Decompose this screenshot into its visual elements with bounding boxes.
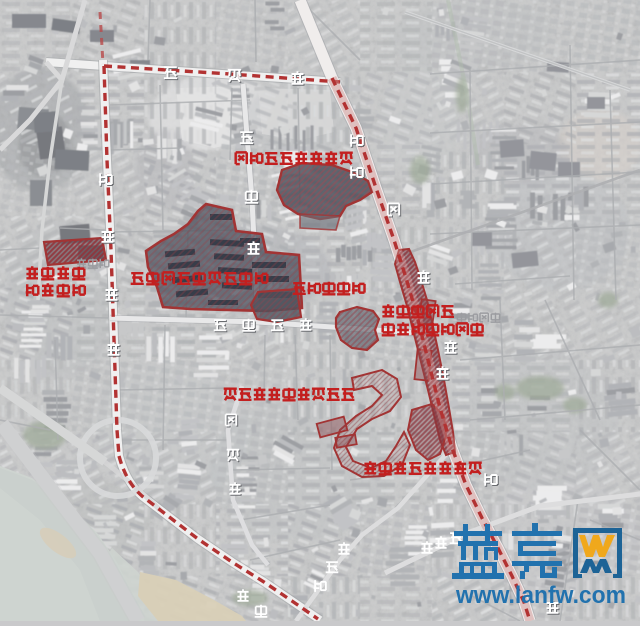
svg-text:www.lanfw.com: www.lanfw.com xyxy=(455,582,626,609)
